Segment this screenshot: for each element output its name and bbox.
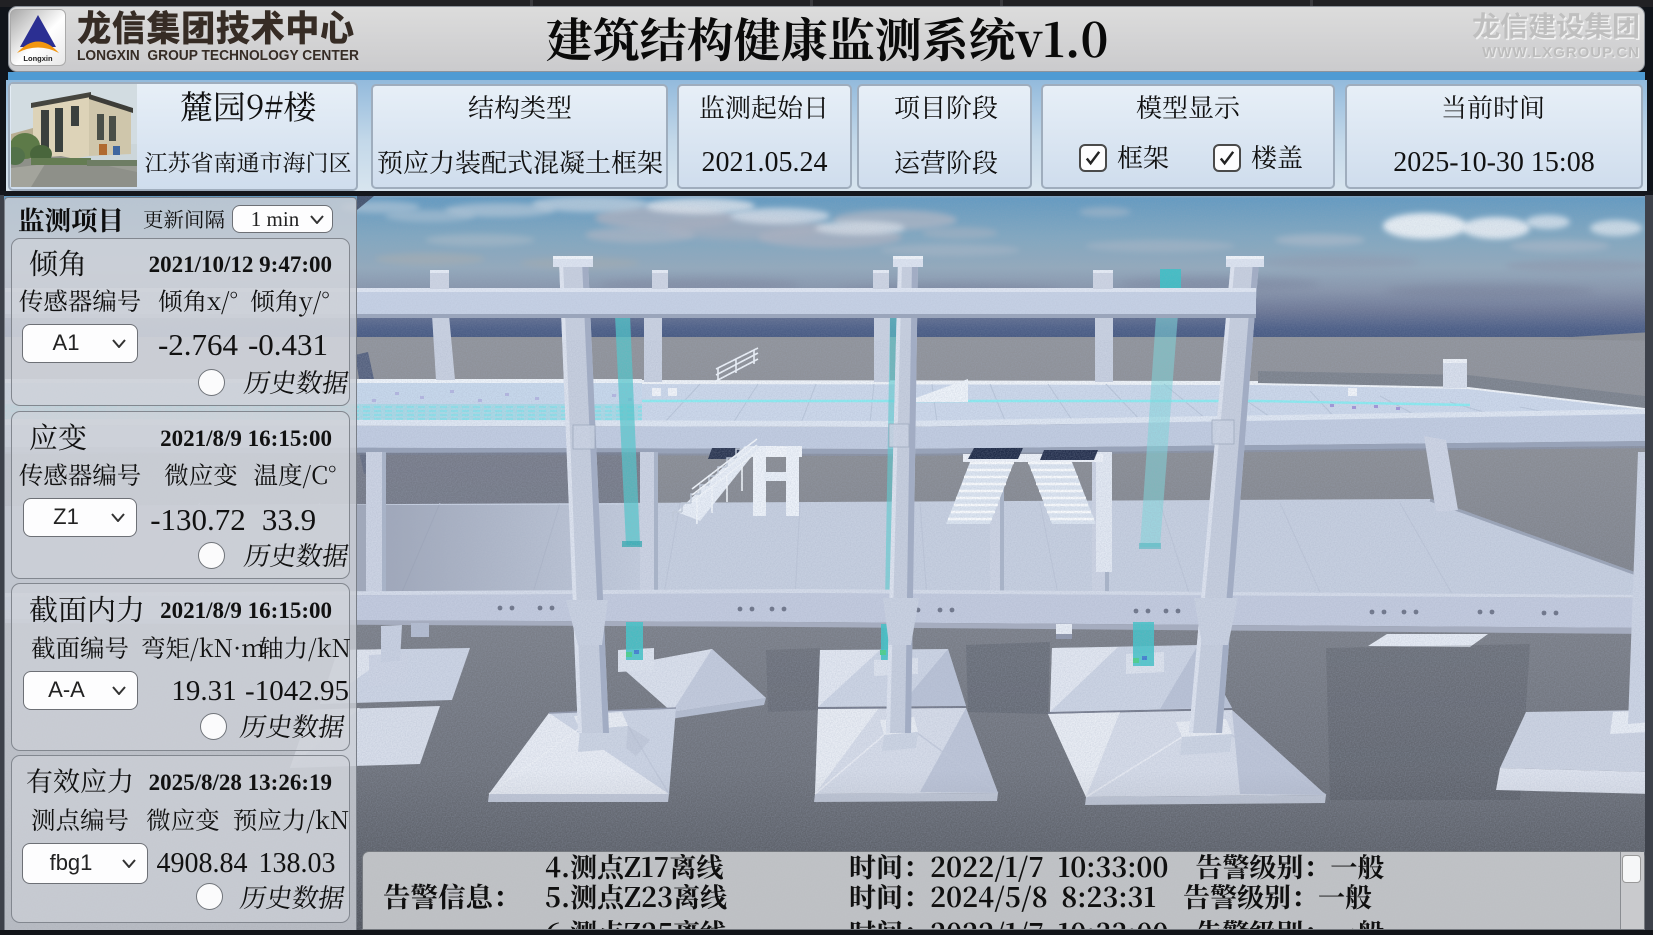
- svg-text:Longxin: Longxin: [23, 54, 53, 63]
